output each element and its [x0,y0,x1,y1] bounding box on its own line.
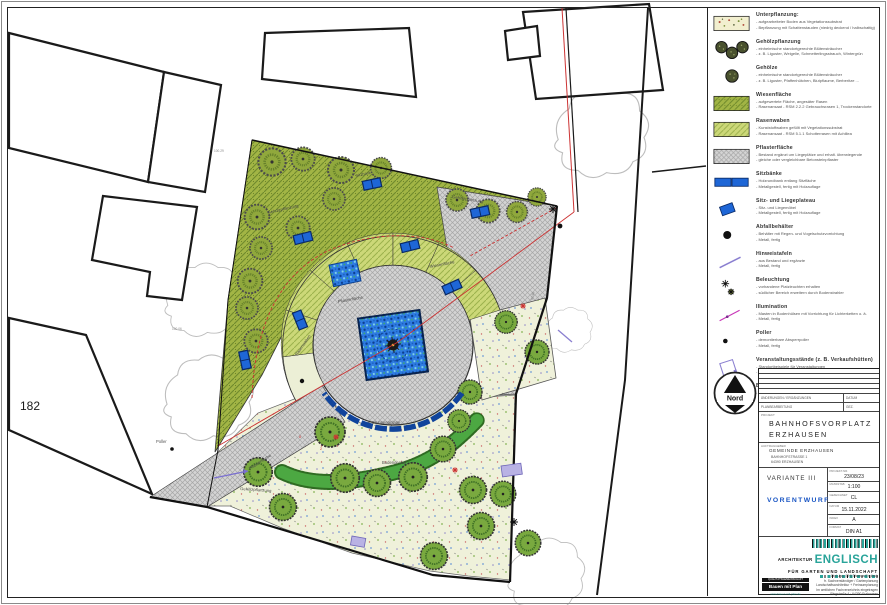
variant-name: VARIANTE III [767,475,816,482]
firm-logo-text: ARCHITEKTUR [778,557,813,562]
legend-item-line: - Metall, fertig [756,237,844,242]
event-stand [501,463,522,477]
bollard-swatch-icon [712,330,752,352]
title-block-fields: PROJEKT-NR. 23/08/23 MASSSTAB 1:100 GEZE… [827,468,880,536]
legend-item-gehoelzpflanzung: Gehölzpflanzung - einheimische standortg… [712,39,878,61]
waste-bin-dot [300,379,304,383]
revision-header-label: ÄNDERUNGEN / ERGÄNZUNGEN [759,396,843,400]
badge-url: www.bauen-mit-plan.de [762,592,809,596]
field-format: FORMAT DIN A1 [828,525,880,536]
badge-label: Bauen mit Plan [762,583,809,592]
field-drawn-by: GEZEICHNET CL [828,492,880,503]
legend-item-pflasterflaeche: Pflasterfläche - Bestand ergänzt um Lieg… [712,145,878,167]
right-panel: Unterpflanzung: - aufgearbeiteter Boden … [707,8,880,596]
tree-number: 8 [299,435,301,439]
revision-header-row: PLANBEARBEITUNG GEZ. [759,403,880,412]
firm-logo-subtitle: FÜR GARTEN UND LANDSCHAFT [778,569,878,574]
paving-swatch-icon [712,145,752,167]
revision-header-label: GEZ. [843,403,880,411]
legend-item-line: - Metallgestell, fertig mit Holzauflage [756,210,820,215]
legend-item-title: Poller [756,330,809,336]
lawn-honeycomb-swatch-icon [712,118,752,140]
field-scale: MASSSTAB 1:100 [828,482,880,493]
legend-item-title: Gehölzpflanzung [756,39,863,45]
legend-item-beleuchtung: Beleuchtung - vorhandene Platzleuchten e… [712,277,878,299]
north-arrow-icon: Nord [712,370,758,416]
barcode-strip [812,539,878,548]
field-value: DIN A1 [828,529,880,535]
legend-item-title: Abfallbehälter [756,224,844,230]
field-label: PROJEKT-NR. [830,469,849,473]
plan-sheet: 182 Poller Gehölzpflanzung Wiesenfläche … [0,0,887,605]
parcel-number: 182 [20,399,40,413]
event-stand [350,536,365,547]
firm-block: ARCHITEKTURENGLISCH FÜR GARTEN UND LANDS… [759,537,880,600]
legend-item-liegeplateau: Sitz- und Liegeplateau - Sitz- und Liege… [712,198,878,220]
legend-item-title: Pflasterfläche [756,145,862,151]
firm-logo-name: ENGLISCH [815,554,878,566]
contact-line: Ringstraße 4 · 64390 Erzhausen [816,592,878,597]
revision-header-label: DATUM [843,394,880,402]
field-value: 23/08/23 [828,474,880,480]
legend-item-line: - Rasenansaat - RSM 2.2.2 Gebrauchsrasen… [756,104,872,109]
legend-item-line: - Metallgestell, fertig mit Holzauflage [756,184,820,189]
legend-item-title: Sitz- und Liegeplateau [756,198,820,204]
phase-name: VORENTWURF [767,497,830,504]
meadow-swatch-icon [712,92,752,114]
legend-item-title: Rasenwaben [756,118,852,124]
title-block: ÄNDERUNGEN / ERGÄNZUNGEN DATUM PLANBEARB… [758,368,880,595]
legend-item-line: - Behälter mit Regen- und Vogelschutzvor… [756,231,844,236]
shrub-swatch-icon [712,65,752,87]
legend-item-title: Gehölze [756,65,859,71]
sign-line [558,330,572,342]
client-name: GEMEINDE ERZHAUSEN [769,448,834,453]
legend-item-gehoelze: Gehölze - einheimische standortgerechte … [712,65,878,87]
client-address: 64390 ERZHAUSEN [771,460,803,464]
variant-cell: VARIANTE III VORENTWURF PROJEKT-NR. 23/0… [759,468,880,537]
field-project-number: PROJEKT-NR. 23/08/23 [828,468,880,482]
elevation-label: 100.06 [172,327,182,331]
legend-item-title: Wiesenfläche [756,92,872,98]
field-date: DATUM 15.11.2022 [828,503,880,515]
legend-item-title: Illumination [756,304,867,310]
lighting-swatch-icon [712,277,752,299]
firm-contact: Dipl.-Ing. (FH) Thomas Englisch fr. Sach… [816,574,878,597]
legend-item-title: Hinweistafeln [756,251,805,257]
legend-item-title: Unterpflanzung: [756,12,875,18]
legend-item-unterpflanzung: Unterpflanzung: - aufgearbeiteter Boden … [712,12,878,34]
legend-item-abfallbehaelter: Abfallbehälter - Behälter mit Regen- und… [712,224,878,246]
legend-item-title: Veranstaltungsstände (z. B. Verkaufshütt… [756,357,873,363]
legend-item-line: - Holzrundbank entlang Sitzfläche [756,178,820,183]
legend-item-poller: Poller - demontierbare Absperrpoller - M… [712,330,878,352]
project-title: ERZHAUSEN [769,430,828,439]
tree-number: 2 [320,447,322,451]
revision-header-label: PLANBEARBEITUNG [759,405,843,409]
underplanting-swatch-icon [712,12,752,34]
legend-item-line: - z. B. Liguster, Weigelie, Schmetterlin… [756,51,863,56]
field-index: INDEX A [828,515,880,524]
legend-item-line: - Kunststoffwaben gefüllt mit Vegetation… [756,125,852,130]
project-label: PROJEKT [761,413,775,417]
shrub-planting-swatch-icon [712,39,752,61]
legend-item-line: - gleiche oder vergleichbare Betonsteinp… [756,157,862,162]
legend-item-line: - Bepflanzung mit Schattenstauden (niedr… [756,25,875,30]
legend-item-wiesenflaeche: Wiesenfläche - aufgewertete Fläche, ange… [712,92,878,114]
bench-swatch-icon [712,171,752,193]
project-title-cell: PROJEKT BAHNHOFSVORPLATZ ERZHAUSEN [759,412,880,443]
badge-top-label: QUALITÄTSGEMEINSCHAFT [762,578,809,582]
sign-swatch-icon [712,251,752,273]
lounge-platform-swatch-icon [712,198,752,220]
north-label: Nord [727,396,743,403]
waste-bin-dot [558,224,563,229]
legend-item-rasenwaben: Rasenwaben - Kunststoffwaben gefüllt mit… [712,118,878,140]
legend-item-line: - Metall, fertig [756,316,867,321]
legend-item-title: Sitzbänke [756,171,820,177]
client-address: BAHNHOFSTRASSE 1 [771,455,807,459]
field-value: CL [828,495,880,501]
bauen-mit-plan-badge: QUALITÄTSGEMEINSCHAFT Bauen mit Plan www… [762,578,809,596]
revision-header-row: ÄNDERUNGEN / ERGÄNZUNGEN DATUM [759,394,880,403]
legend-item-line: - z. B. Liguster, Pfaffenhütchen, Blutpf… [756,78,859,83]
legend-item-line: - Metall, fertig [756,343,809,348]
bodendecker-label: Bodendecker [382,460,407,465]
legend-item-title: Beleuchtung [756,277,844,283]
legend: Unterpflanzung: - aufgearbeiteter Boden … [708,12,880,410]
legend-item-line: - Metall, fertig [756,263,805,268]
project-title: BAHNHOFSVORPLATZ [769,419,872,428]
legend-item-sitzbaenke: Sitzbänke - Holzrundbank entlang Sitzflä… [712,171,878,193]
waste-bin-swatch-icon [712,224,752,246]
legend-item-line: - Rasenansaat - RSM 5.1.1 Schotterrasen … [756,131,852,136]
legend-item-hinweistafeln: Hinweistafeln - aus Bestand und ergänzte… [712,251,878,273]
field-value: 1:100 [828,484,880,490]
legend-item-illumination: Illumination - Masten in Bodenhülsen mit… [712,304,878,326]
poller-dot [170,447,174,451]
field-value: A [828,517,880,523]
elevation-label: 100.29 [214,149,224,153]
client-cell: AUFTRAGGEBER GEMEINDE ERZHAUSEN BAHNHOFS… [759,443,880,468]
field-value: 15.11.2022 [828,507,880,513]
legend-item-line: - südlicher Bereich erweitern durch Bode… [756,290,844,295]
poller-label: Poller [156,439,167,444]
brunnen-label: Brunnenanlage [372,420,401,425]
illumination-swatch-icon [712,304,752,326]
legend-item-line: - demontierbare Absperrpoller [756,337,809,342]
